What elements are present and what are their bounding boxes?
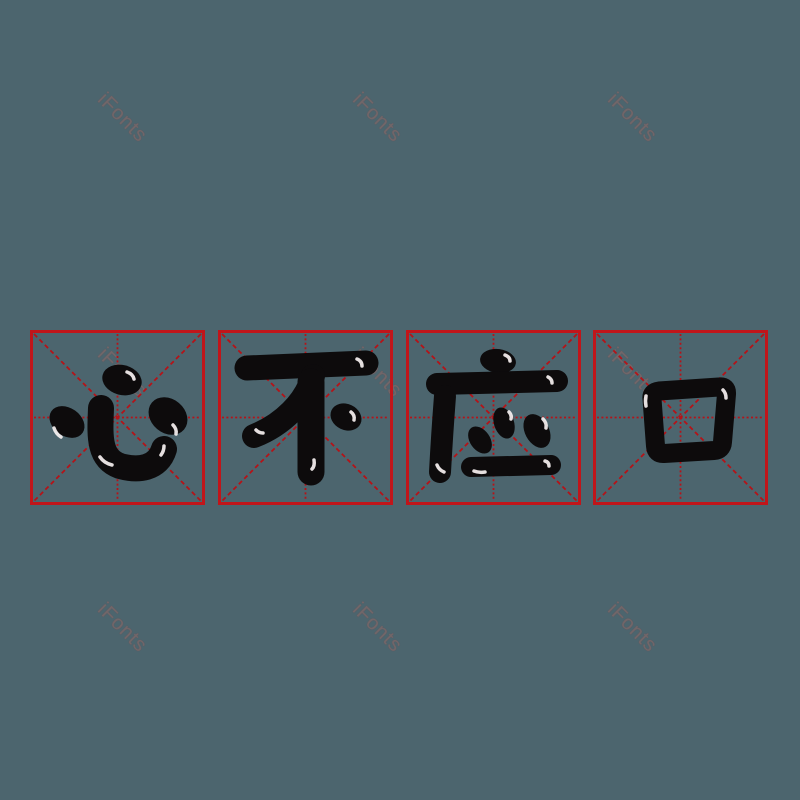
watermark-text: iFonts [602,598,661,657]
watermark-text: iFonts [347,88,406,147]
hanzi-square-2 [218,330,393,505]
artboard: iFontsiFontsiFontsiFontsiFontsiFontsiFon… [0,0,800,800]
mizige-square-4 [593,330,768,505]
mizige-square-2 [218,330,393,505]
hanzi-square-1 [30,330,205,505]
mizige-grid-lines [595,332,767,504]
watermark-text: iFonts [92,88,151,147]
hanzi-strokes-2 [247,359,366,472]
hanzi-strokes-1 [43,360,195,468]
hanzi-square-4 [593,330,768,505]
hanzi-strokes-3 [437,347,557,473]
hanzi-square-3 [406,330,581,505]
mizige-square-1 [30,330,205,505]
watermark-text: iFonts [347,598,406,657]
mizige-square-3 [406,330,581,505]
watermark-text: iFonts [602,88,661,147]
hanzi-strokes-4 [646,387,727,454]
watermark-text: iFonts [92,598,151,657]
